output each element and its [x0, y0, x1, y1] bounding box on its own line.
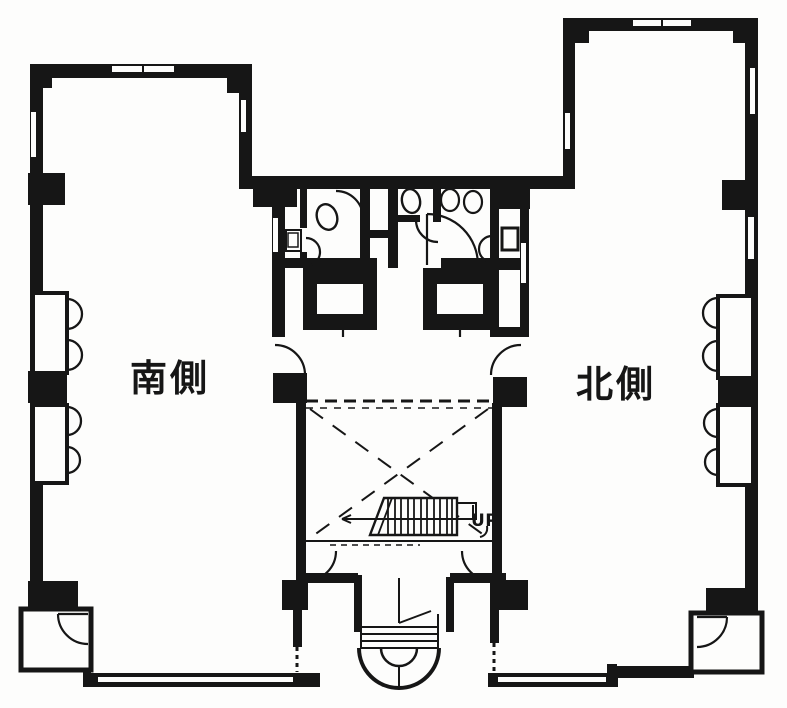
utility-sink-icon: [502, 228, 518, 250]
door-arc: [336, 191, 363, 218]
sink-icon: [288, 233, 298, 247]
stair-up-label: UP: [471, 511, 498, 531]
inner-stair-arc: [381, 648, 417, 666]
corner-room-door-arcs: [58, 614, 727, 647]
door-arc: [491, 345, 521, 375]
floor-plan-drawing: UP 南側 北側: [0, 0, 787, 708]
north-wing-label: 北側: [576, 363, 656, 406]
toilet-icon: [313, 202, 340, 233]
floor-plan-sheet: UP 南側 北側: [0, 0, 787, 708]
washbasin-icon: [441, 189, 459, 211]
washbasin-icon: [464, 191, 482, 213]
south-wing-label: 南側: [130, 357, 210, 400]
entrance-curved-stair: [359, 578, 439, 688]
window-slits: [31, 20, 755, 682]
door-arc: [275, 345, 305, 375]
staircase: UP: [342, 498, 498, 537]
elevator-hall: [297, 401, 494, 672]
toilet-icon: [400, 187, 423, 214]
exterior-walls: [28, 18, 758, 687]
